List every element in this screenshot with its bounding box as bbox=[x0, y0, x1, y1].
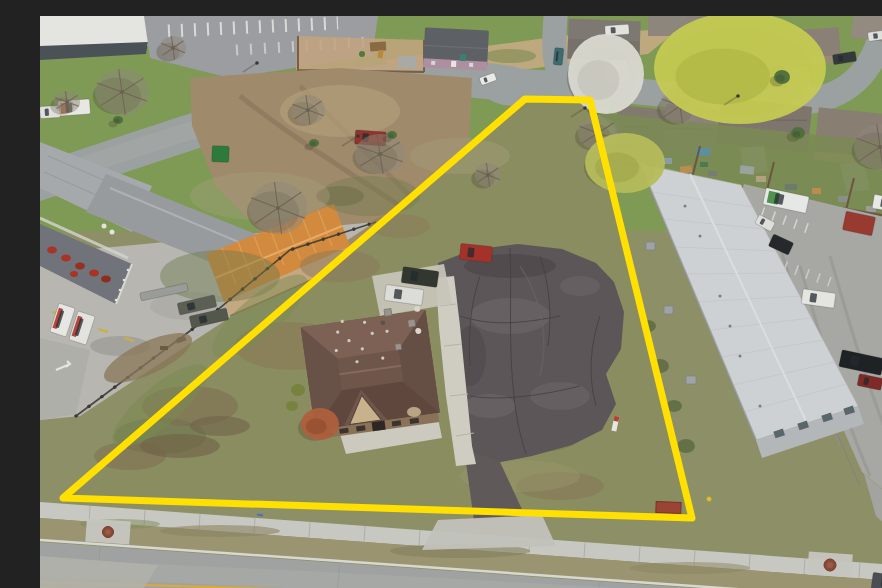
vehicle-teal-car-street bbox=[553, 48, 564, 66]
aerial-photo bbox=[40, 16, 882, 588]
debris bbox=[160, 346, 168, 350]
white-barrel bbox=[110, 230, 115, 235]
house-door bbox=[451, 61, 456, 67]
purple-house bbox=[423, 27, 489, 70]
aerial-photo-frame bbox=[40, 16, 882, 588]
utility-marker bbox=[707, 497, 712, 502]
driveway-apron bbox=[422, 515, 556, 550]
white-barrel bbox=[102, 224, 107, 229]
house-window bbox=[469, 63, 473, 67]
yard-bush bbox=[359, 51, 365, 57]
vehicle-red-suv-parcel bbox=[459, 243, 492, 262]
tree-yellow-12 bbox=[654, 16, 826, 124]
vehicle-white-van-top bbox=[605, 24, 630, 36]
green-bush bbox=[291, 384, 305, 396]
landscape-rock bbox=[407, 407, 421, 417]
playground-set bbox=[370, 41, 387, 51]
green-bush bbox=[286, 401, 298, 411]
vehicle-gray-sedan-road bbox=[871, 572, 882, 588]
trash-bin bbox=[460, 54, 467, 62]
storm-manhole-0 bbox=[85, 518, 130, 544]
house-window bbox=[431, 61, 435, 65]
patio bbox=[398, 56, 417, 69]
weed-patch bbox=[484, 49, 536, 63]
red-corner-marker bbox=[656, 502, 681, 514]
office-entrance-door bbox=[372, 421, 386, 432]
storm-manhole-1 bbox=[807, 551, 852, 577]
vehicle-green-dumpster bbox=[212, 146, 230, 163]
